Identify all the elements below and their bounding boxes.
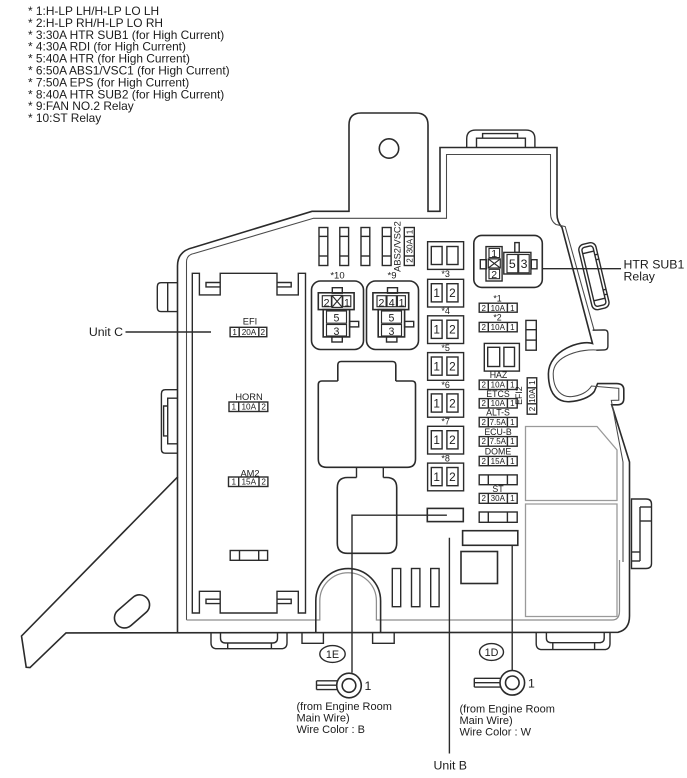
- svg-text:*10: *10: [330, 271, 344, 282]
- svg-text:2: 2: [528, 406, 537, 411]
- svg-text:1: 1: [510, 457, 515, 466]
- svg-text:*2: *2: [493, 313, 501, 323]
- svg-text:Relay: Relay: [624, 270, 656, 284]
- svg-text:1: 1: [433, 433, 440, 447]
- svg-text:2: 2: [449, 286, 456, 300]
- svg-text:2: 2: [481, 437, 486, 446]
- svg-text:2: 2: [481, 494, 486, 503]
- svg-text:Main Wire): Main Wire): [460, 715, 513, 727]
- svg-text:2: 2: [449, 470, 456, 484]
- svg-text:1: 1: [510, 418, 515, 427]
- svg-text:1: 1: [232, 478, 237, 487]
- svg-text:Unit B: Unit B: [434, 759, 468, 773]
- svg-text:*7: *7: [441, 417, 450, 427]
- svg-text:3: 3: [521, 257, 528, 271]
- svg-text:(from Engine Room: (from Engine Room: [460, 704, 555, 716]
- svg-text:20A: 20A: [242, 328, 257, 337]
- svg-text:3: 3: [334, 326, 340, 338]
- svg-text:Unit C: Unit C: [89, 325, 123, 339]
- svg-text:ST: ST: [492, 484, 504, 494]
- svg-text:7.5A: 7.5A: [490, 418, 507, 427]
- svg-text:30A: 30A: [406, 238, 415, 253]
- svg-text:2: 2: [261, 403, 266, 412]
- svg-text:ECU-B: ECU-B: [484, 427, 512, 437]
- svg-text:1: 1: [510, 323, 515, 332]
- svg-text:1D: 1D: [485, 647, 499, 659]
- svg-text:ALT-S: ALT-S: [486, 408, 510, 418]
- svg-text:2: 2: [481, 418, 486, 427]
- svg-text:DOME: DOME: [485, 447, 512, 457]
- svg-text:5: 5: [509, 257, 516, 271]
- svg-text:2: 2: [449, 359, 456, 373]
- svg-text:10A: 10A: [528, 388, 537, 403]
- svg-text:1: 1: [433, 470, 440, 484]
- svg-text:(from Engine Room: (from Engine Room: [297, 701, 392, 713]
- svg-text:1: 1: [528, 677, 535, 691]
- svg-text:EFI: EFI: [243, 317, 257, 327]
- svg-text:15A: 15A: [491, 457, 506, 466]
- svg-text:*3: *3: [441, 269, 450, 279]
- svg-text:*1: *1: [493, 294, 501, 304]
- svg-text:4: 4: [389, 298, 395, 310]
- svg-text:*9: *9: [388, 271, 397, 282]
- svg-text:1: 1: [232, 328, 237, 337]
- svg-text:2: 2: [491, 269, 497, 281]
- svg-text:7.5A: 7.5A: [490, 437, 507, 446]
- svg-text:2: 2: [324, 298, 330, 310]
- svg-text:Wire Color : B: Wire Color : B: [297, 724, 365, 736]
- svg-text:*4: *4: [441, 306, 450, 316]
- svg-text:2: 2: [378, 298, 384, 310]
- svg-text:3: 3: [389, 326, 395, 338]
- svg-text:* 10:ST Relay: * 10:ST Relay: [28, 111, 101, 125]
- svg-text:2: 2: [406, 258, 415, 263]
- svg-text:Wire Color : W: Wire Color : W: [460, 727, 532, 739]
- svg-text:HORN: HORN: [235, 392, 262, 402]
- svg-text:10A: 10A: [491, 323, 506, 332]
- svg-text:5: 5: [389, 313, 395, 325]
- svg-text:1: 1: [399, 298, 405, 310]
- svg-text:ABS2/VSC2: ABS2/VSC2: [393, 221, 403, 272]
- svg-text:1: 1: [528, 380, 537, 385]
- svg-text:1: 1: [491, 248, 497, 260]
- svg-text:15A: 15A: [242, 478, 257, 487]
- svg-text:2: 2: [449, 396, 456, 410]
- svg-text:5: 5: [334, 313, 340, 325]
- svg-text:2: 2: [481, 323, 486, 332]
- svg-text:1: 1: [510, 437, 515, 446]
- svg-text:2: 2: [449, 323, 456, 337]
- svg-text:ETCS: ETCS: [486, 389, 510, 399]
- svg-text:2: 2: [449, 433, 456, 447]
- svg-text:HAZ: HAZ: [490, 370, 508, 380]
- svg-text:*8: *8: [441, 454, 450, 464]
- svg-text:EFI2: EFI2: [514, 386, 524, 405]
- svg-text:10A: 10A: [242, 403, 257, 412]
- svg-text:1: 1: [232, 403, 237, 412]
- svg-text:1: 1: [365, 679, 372, 693]
- svg-text:1: 1: [433, 396, 440, 410]
- svg-text:30A: 30A: [491, 494, 506, 503]
- svg-text:1: 1: [344, 298, 350, 310]
- svg-text:2: 2: [481, 457, 486, 466]
- svg-text:2: 2: [261, 328, 266, 337]
- svg-text:2: 2: [481, 304, 486, 313]
- svg-text:1E: 1E: [326, 649, 339, 661]
- svg-text:2: 2: [261, 478, 266, 487]
- svg-text:1: 1: [510, 304, 515, 313]
- svg-text:*5: *5: [441, 343, 450, 353]
- svg-text:1: 1: [433, 286, 440, 300]
- svg-text:1: 1: [433, 323, 440, 337]
- svg-text:1: 1: [406, 229, 415, 234]
- svg-text:Main Wire): Main Wire): [297, 713, 350, 725]
- svg-text:10A: 10A: [491, 304, 506, 313]
- svg-text:*6: *6: [441, 380, 450, 390]
- svg-text:1: 1: [510, 494, 515, 503]
- svg-text:1: 1: [433, 359, 440, 373]
